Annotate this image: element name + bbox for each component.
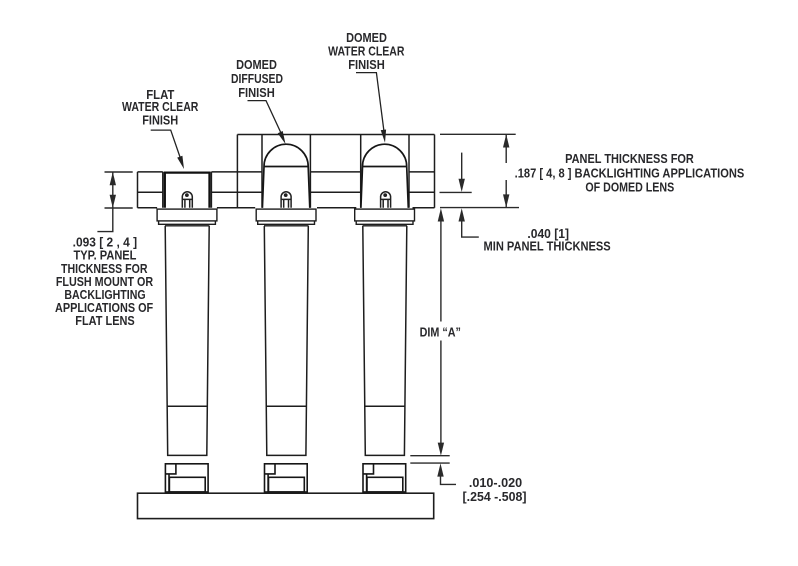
svg-text:TYP. PANEL: TYP. PANEL — [74, 249, 137, 263]
svg-text:FINISH: FINISH — [348, 58, 385, 72]
svg-text:DOMED: DOMED — [346, 31, 387, 45]
svg-text:FLUSH MOUNT OR: FLUSH MOUNT OR — [56, 275, 153, 289]
svg-text:PANEL THICKNESS FOR: PANEL THICKNESS FOR — [565, 152, 694, 166]
svg-text:BACKLIGHTING: BACKLIGHTING — [64, 288, 145, 302]
svg-text:FLAT LENS: FLAT LENS — [75, 314, 135, 328]
svg-text:.093 [ 2 , 4 ]: .093 [ 2 , 4 ] — [73, 236, 138, 250]
svg-text:WATER CLEAR: WATER CLEAR — [122, 100, 198, 114]
svg-text:.187 [ 4, 8 ] BACKLIGHTING APP: .187 [ 4, 8 ] BACKLIGHTING APPLICATIONS — [515, 166, 745, 180]
svg-text:DIM “A”: DIM “A” — [420, 325, 461, 339]
svg-text:WATER CLEAR: WATER CLEAR — [328, 44, 404, 58]
svg-text:.010-.020: .010-.020 — [469, 476, 522, 490]
svg-text:.040 [1]: .040 [1] — [527, 227, 569, 241]
svg-text:[.254 -.508]: [.254 -.508] — [463, 490, 527, 504]
svg-text:MIN PANEL THICKNESS: MIN PANEL THICKNESS — [484, 240, 611, 254]
svg-text:DIFFUSED: DIFFUSED — [231, 72, 283, 86]
svg-text:THICKNESS FOR: THICKNESS FOR — [61, 262, 148, 276]
svg-text:FINISH: FINISH — [142, 114, 178, 128]
svg-text:DOMED: DOMED — [236, 58, 277, 72]
svg-text:FINISH: FINISH — [238, 86, 275, 100]
svg-text:OF DOMED LENS: OF DOMED LENS — [585, 180, 674, 194]
svg-text:APPLICATIONS OF: APPLICATIONS OF — [55, 301, 153, 315]
